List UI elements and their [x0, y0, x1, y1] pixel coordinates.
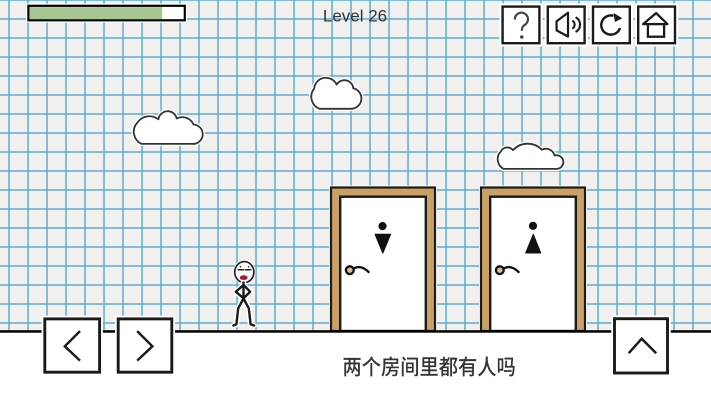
svg-text:Level 26: Level 26 — [323, 7, 387, 26]
